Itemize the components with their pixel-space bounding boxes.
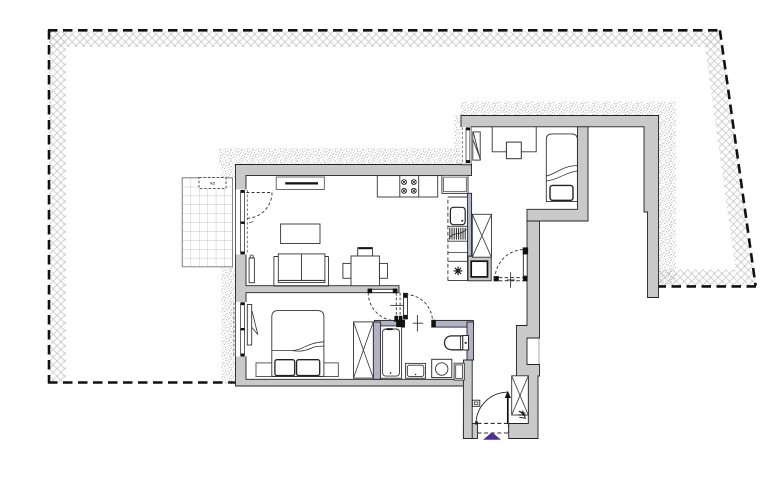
svg-text:KZ: KZ [210, 182, 216, 186]
